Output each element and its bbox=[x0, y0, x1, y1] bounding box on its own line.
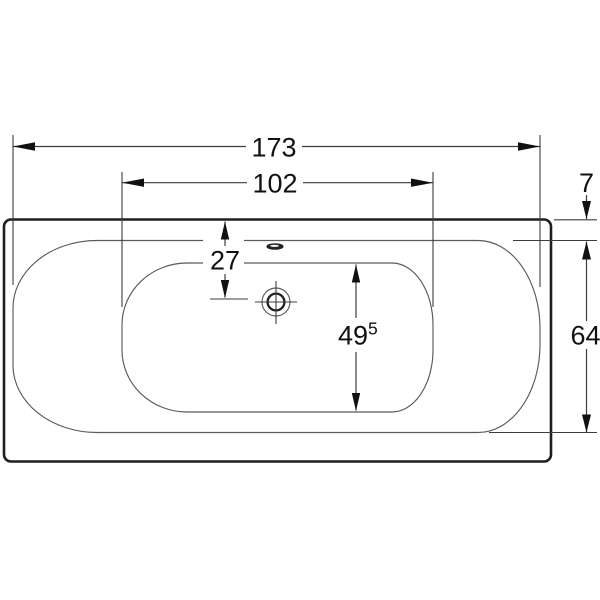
dim-102-label: 102 bbox=[252, 169, 297, 199]
arrow-up-icon bbox=[582, 242, 591, 260]
arrow-right-icon bbox=[518, 142, 540, 150]
arrow-right-icon bbox=[411, 179, 433, 187]
dim-49-superscript: 5 bbox=[368, 319, 378, 339]
dim-27-label: 27 bbox=[210, 246, 240, 276]
overflow-slot-highlight bbox=[270, 245, 279, 247]
dim-7-label: 7 bbox=[579, 168, 594, 198]
arrow-down-icon bbox=[582, 415, 591, 433]
arrow-down-icon bbox=[582, 201, 591, 219]
dim-rim-width: 7 bbox=[554, 168, 597, 220]
bathtub-drawing-svg: 173 102 7 64 27 bbox=[0, 0, 600, 600]
arrow-left-icon bbox=[13, 142, 35, 150]
dim-64-label: 64 bbox=[570, 321, 600, 351]
dim-173-label: 173 bbox=[251, 133, 296, 163]
dim-49-value: 49 bbox=[338, 321, 368, 351]
technical-drawing-canvas: 173 102 7 64 27 bbox=[0, 0, 600, 600]
bathtub-geometry bbox=[4, 220, 551, 462]
tub-outer-outline bbox=[4, 220, 551, 462]
overflow-slot bbox=[266, 243, 283, 250]
arrow-left-icon bbox=[122, 179, 144, 187]
